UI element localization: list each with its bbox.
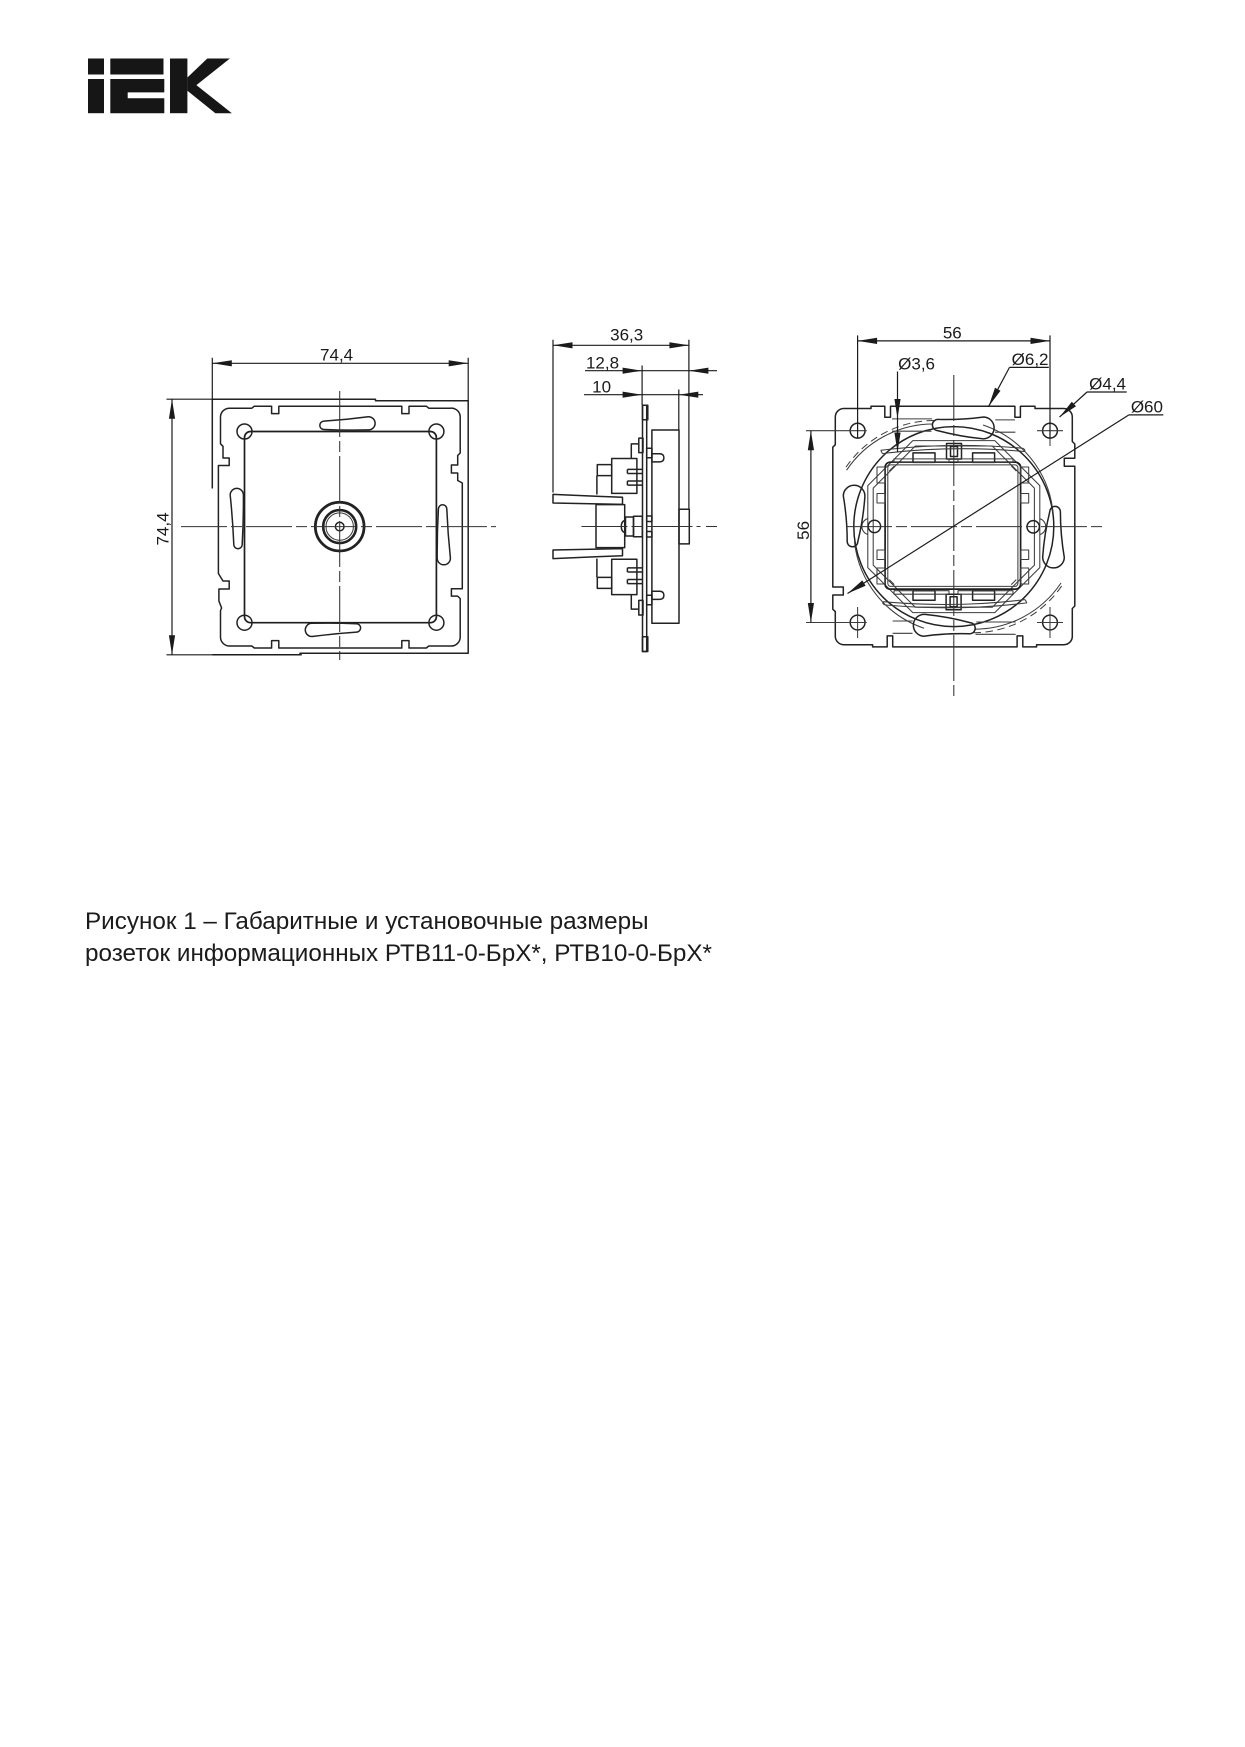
svg-text:74,4: 74,4 [154,512,173,545]
svg-text:розеток информационных РТВ11-0: розеток информационных РТВ11-0-БрХ*, РТВ… [85,940,713,967]
svg-text:Рисунок 1 – Габаритные и устан: Рисунок 1 – Габаритные и установочные ра… [85,908,649,935]
svg-text:56: 56 [794,521,813,540]
svg-text:Ø3,6: Ø3,6 [898,354,935,373]
svg-text:36,3: 36,3 [610,325,643,344]
svg-text:56: 56 [943,324,962,343]
svg-text:12,8: 12,8 [586,353,619,372]
svg-text:Ø4,4: Ø4,4 [1089,375,1126,394]
svg-text:10: 10 [592,377,611,396]
svg-text:Ø6,2: Ø6,2 [1012,350,1049,369]
svg-text:Ø60: Ø60 [1131,397,1163,416]
svg-text:74,4: 74,4 [320,345,353,364]
